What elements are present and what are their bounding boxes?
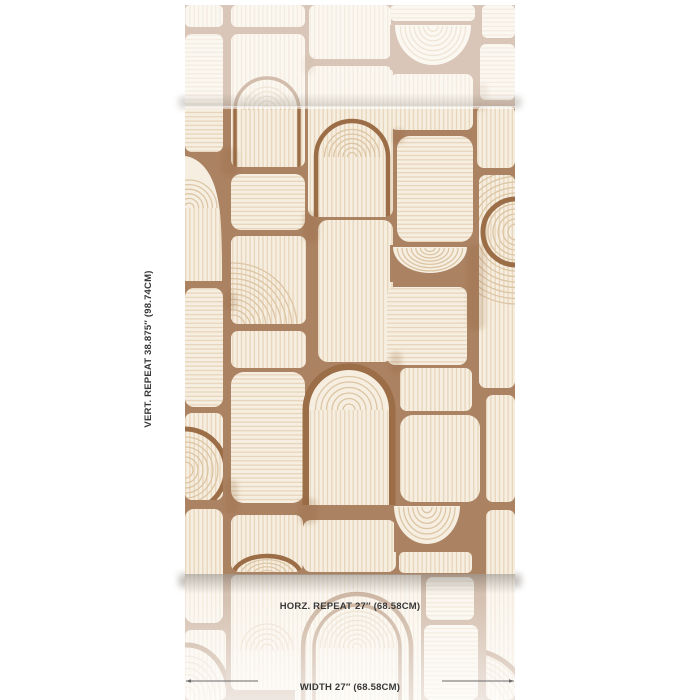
svg-text:WIDTH 27″ (68.58CM): WIDTH 27″ (68.58CM) [300, 682, 400, 693]
svg-text:HORZ. REPEAT 27″ (68.58CM): HORZ. REPEAT 27″ (68.58CM) [280, 601, 421, 612]
svg-text:VERT. REPEAT 38.875″ (98.74CM): VERT. REPEAT 38.875″ (98.74CM) [143, 270, 154, 427]
